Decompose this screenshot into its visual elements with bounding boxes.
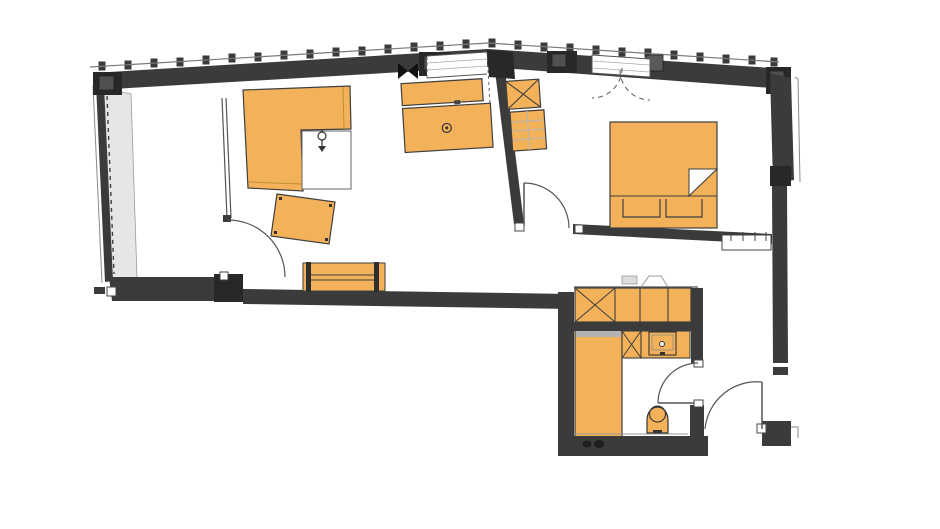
wall-end-tick	[94, 287, 105, 294]
desk	[401, 78, 493, 152]
radiator	[722, 235, 771, 250]
bathroom-left-wall	[558, 292, 574, 455]
coffee-table-corner	[329, 204, 332, 207]
door-stopper	[594, 440, 604, 448]
door-hinge-plate	[220, 272, 228, 280]
bench	[303, 263, 385, 291]
bathroom-bottom-wall	[558, 436, 708, 456]
window-bedroom	[592, 55, 650, 77]
floor-plan-canvas	[0, 0, 940, 529]
shower-cabinet-top	[576, 331, 621, 337]
closet-shelf-icon	[622, 276, 637, 284]
sink-faucet	[660, 342, 665, 347]
door-hinge-plate	[107, 287, 116, 296]
bathroom-door-swing	[658, 363, 698, 403]
wall-column-cap	[552, 54, 566, 67]
coffee-table-corner	[325, 238, 328, 241]
bathroom-right-wall	[691, 288, 703, 364]
wall-corner-block	[487, 50, 515, 79]
wall-corner-column	[770, 166, 791, 186]
bench-armrest	[374, 262, 379, 292]
hall-right-wall	[772, 186, 788, 363]
side-table	[302, 131, 351, 189]
pendant-lamp-icon	[318, 132, 326, 140]
bench-armrest	[306, 262, 311, 292]
coffee-table	[271, 194, 335, 244]
floor-plan-page	[0, 0, 940, 529]
door-hinge-plate	[694, 400, 703, 407]
door-hinge-plate	[515, 223, 524, 231]
right-exterior-outline	[795, 77, 800, 182]
door-hinge-plate	[575, 225, 583, 233]
wardrobe-unit	[506, 79, 547, 151]
toilet-flush	[653, 430, 662, 433]
closet-open-door-icon	[641, 276, 668, 287]
desk-joint	[454, 100, 460, 104]
sink-drain	[660, 352, 665, 355]
door-jamb	[773, 367, 788, 375]
glass-wall-endcap	[223, 215, 231, 222]
coffee-table-corner	[279, 197, 282, 200]
shower-cabinet	[575, 331, 622, 442]
coffee-table-corner	[274, 231, 277, 234]
bathroom-mid-wall	[574, 322, 698, 331]
closet-row	[575, 288, 691, 322]
bedroom-door-swing	[524, 183, 569, 228]
entry-outline-tick	[791, 427, 798, 438]
desk-top	[401, 79, 483, 106]
door-stopper	[583, 441, 592, 448]
bottom-wall-right	[243, 289, 571, 309]
wall-column-cap	[99, 76, 114, 90]
entry-door-swing	[705, 382, 762, 429]
